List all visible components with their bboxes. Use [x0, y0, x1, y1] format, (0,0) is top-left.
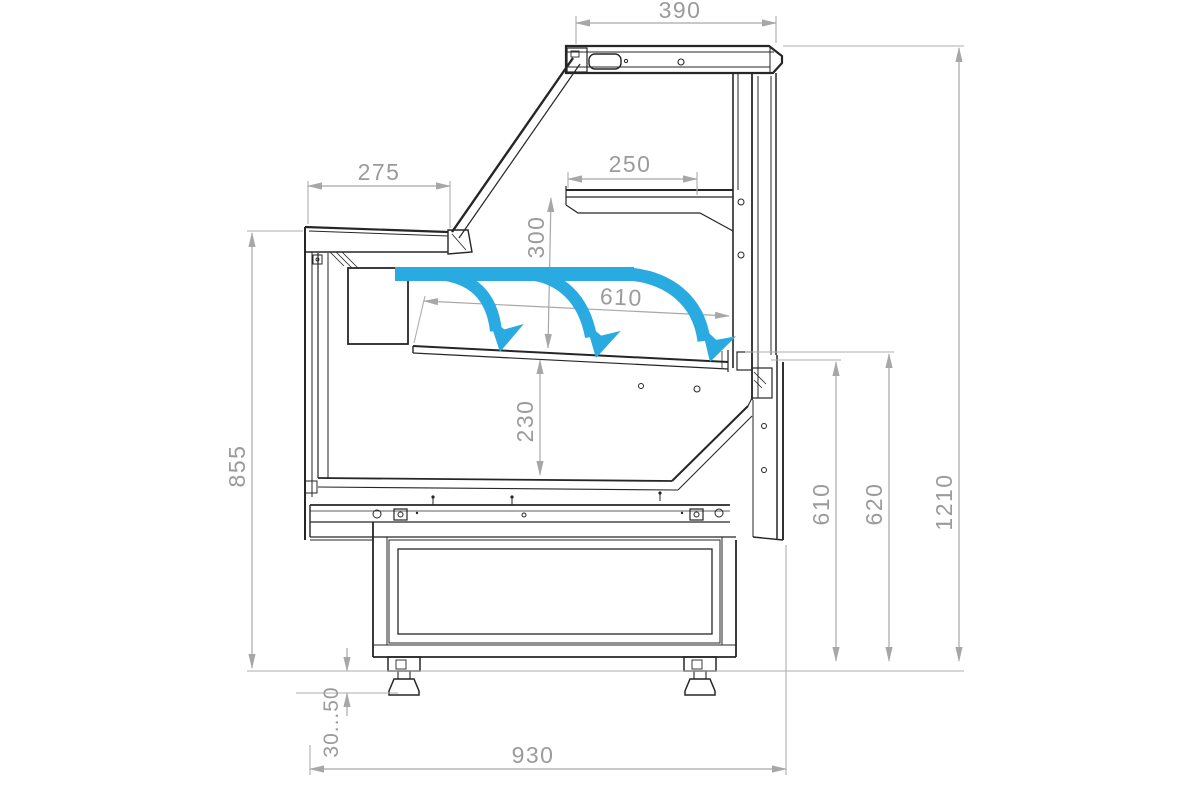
dim-deck-width-label: 610 — [599, 283, 643, 311]
dimensions: 390 275 250 300 610 230 855 610 620 — [224, 0, 964, 775]
canopy — [566, 46, 782, 73]
front-glass — [448, 58, 580, 254]
drawing-canvas: 390 275 250 300 610 230 855 610 620 — [0, 0, 1200, 800]
dim-base-width-label: 930 — [512, 742, 555, 768]
adjustable-foot-left — [388, 657, 420, 695]
dim-shelf-to-deck-label: 300 — [523, 216, 549, 259]
dim-front-height-label: 855 — [224, 445, 250, 488]
dim-overall-height-label: 1210 — [931, 473, 957, 530]
plinth — [373, 522, 736, 657]
dim-shelf-width-label: 250 — [609, 151, 652, 177]
dim-canopy-width-label: 390 — [659, 0, 702, 23]
interior-shelf — [566, 186, 744, 258]
dim-rear-wall-height-label: 620 — [861, 483, 887, 526]
dim-leg-adjustment-label: 30...50 — [320, 686, 343, 757]
adjustable-foot-right — [684, 657, 716, 695]
dim-counter-depth-label: 275 — [358, 159, 401, 185]
technical-drawing: 390 275 250 300 610 230 855 610 620 — [0, 0, 1200, 800]
case-structure — [305, 46, 783, 695]
dim-rear-opening-height-label: 610 — [808, 483, 834, 526]
rear-service-side — [639, 73, 784, 540]
dim-deck-to-base-label: 230 — [512, 400, 538, 443]
